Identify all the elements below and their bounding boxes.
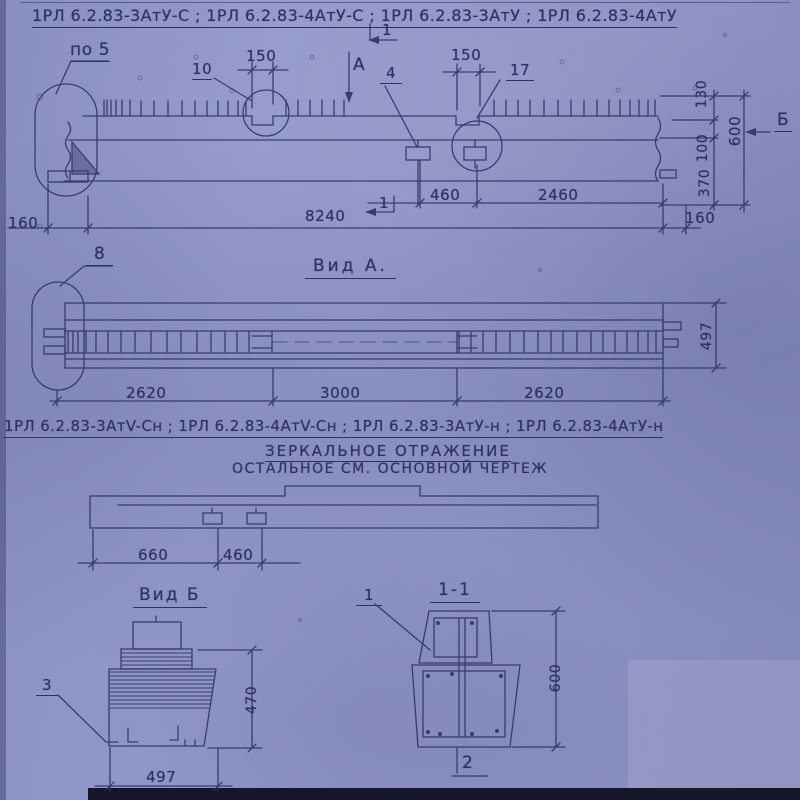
dim-460: 460 <box>430 186 460 204</box>
view-a-title: Вид А. <box>305 256 396 279</box>
dim-8240: 8240 <box>305 207 346 225</box>
section-mark-1-top: 1 <box>382 21 392 39</box>
dim-150-left: 150 <box>246 47 276 65</box>
dim-370: 370 <box>697 161 713 205</box>
dim-2620-right: 2620 <box>524 384 565 402</box>
dim-150-right: 150 <box>451 46 481 64</box>
rest-note: ОСТАЛЬНОЕ СМ. ОСНОВНОЙ ЧЕРТЕЖ <box>232 461 548 477</box>
dim-2460: 2460 <box>538 186 579 204</box>
view-mark-a: A <box>353 55 365 75</box>
dim-600-section: 600 <box>548 656 564 700</box>
leader-17-label: 17 <box>506 61 534 81</box>
designation-line-2: 1РЛ 6.2.83-3АтV-Сн ; 1РЛ 6.2.83-4АтV-Сн … <box>4 417 663 438</box>
dim-3000: 3000 <box>320 384 361 402</box>
leader-10-label: 10 <box>192 60 212 80</box>
dim-2620-left: 2620 <box>126 384 167 402</box>
dim-130: 130 <box>694 72 710 116</box>
designation-line-1: 1РЛ 6.2.83-3АтУ-С ; 1РЛ 6.2.83-4АтУ-С ; … <box>32 6 677 28</box>
dim-497-view-a: 497 <box>699 314 715 358</box>
view-mark-b: Б <box>774 110 792 132</box>
section-1-1-title: 1-1 <box>430 580 480 603</box>
dim-460-mirror: 460 <box>223 546 253 564</box>
view-b <box>58 616 262 792</box>
dim-160-right: 160 <box>685 209 715 227</box>
drawing-linework <box>0 0 800 800</box>
dim-470: 470 <box>244 678 260 722</box>
leader-4-label: 4 <box>380 64 402 84</box>
leader-2-label: 2 <box>462 753 473 773</box>
blueprint-sheet: 1РЛ 6.2.83-3АтУ-С ; 1РЛ 6.2.83-4АтУ-С ; … <box>0 0 800 800</box>
view-b-title: Вид Б <box>133 585 207 608</box>
section-mark-1-bottom: 1 <box>379 194 389 212</box>
leader-8-label: 8 <box>86 244 113 266</box>
dim-160-left: 160 <box>8 214 38 232</box>
dim-497-view-b: 497 <box>146 768 176 786</box>
leader-1-label: 1 <box>356 586 382 606</box>
detail-po5-label: по 5 <box>70 40 110 62</box>
dim-660: 660 <box>138 546 168 564</box>
mirror-note: ЗЕРКАЛЬНОЕ ОТРАЖЕНИЕ <box>265 442 511 462</box>
dim-600-right: 600 <box>726 109 744 153</box>
leader-3-label: 3 <box>36 676 58 696</box>
paper-specks <box>37 34 727 622</box>
section-1-1 <box>375 604 565 776</box>
